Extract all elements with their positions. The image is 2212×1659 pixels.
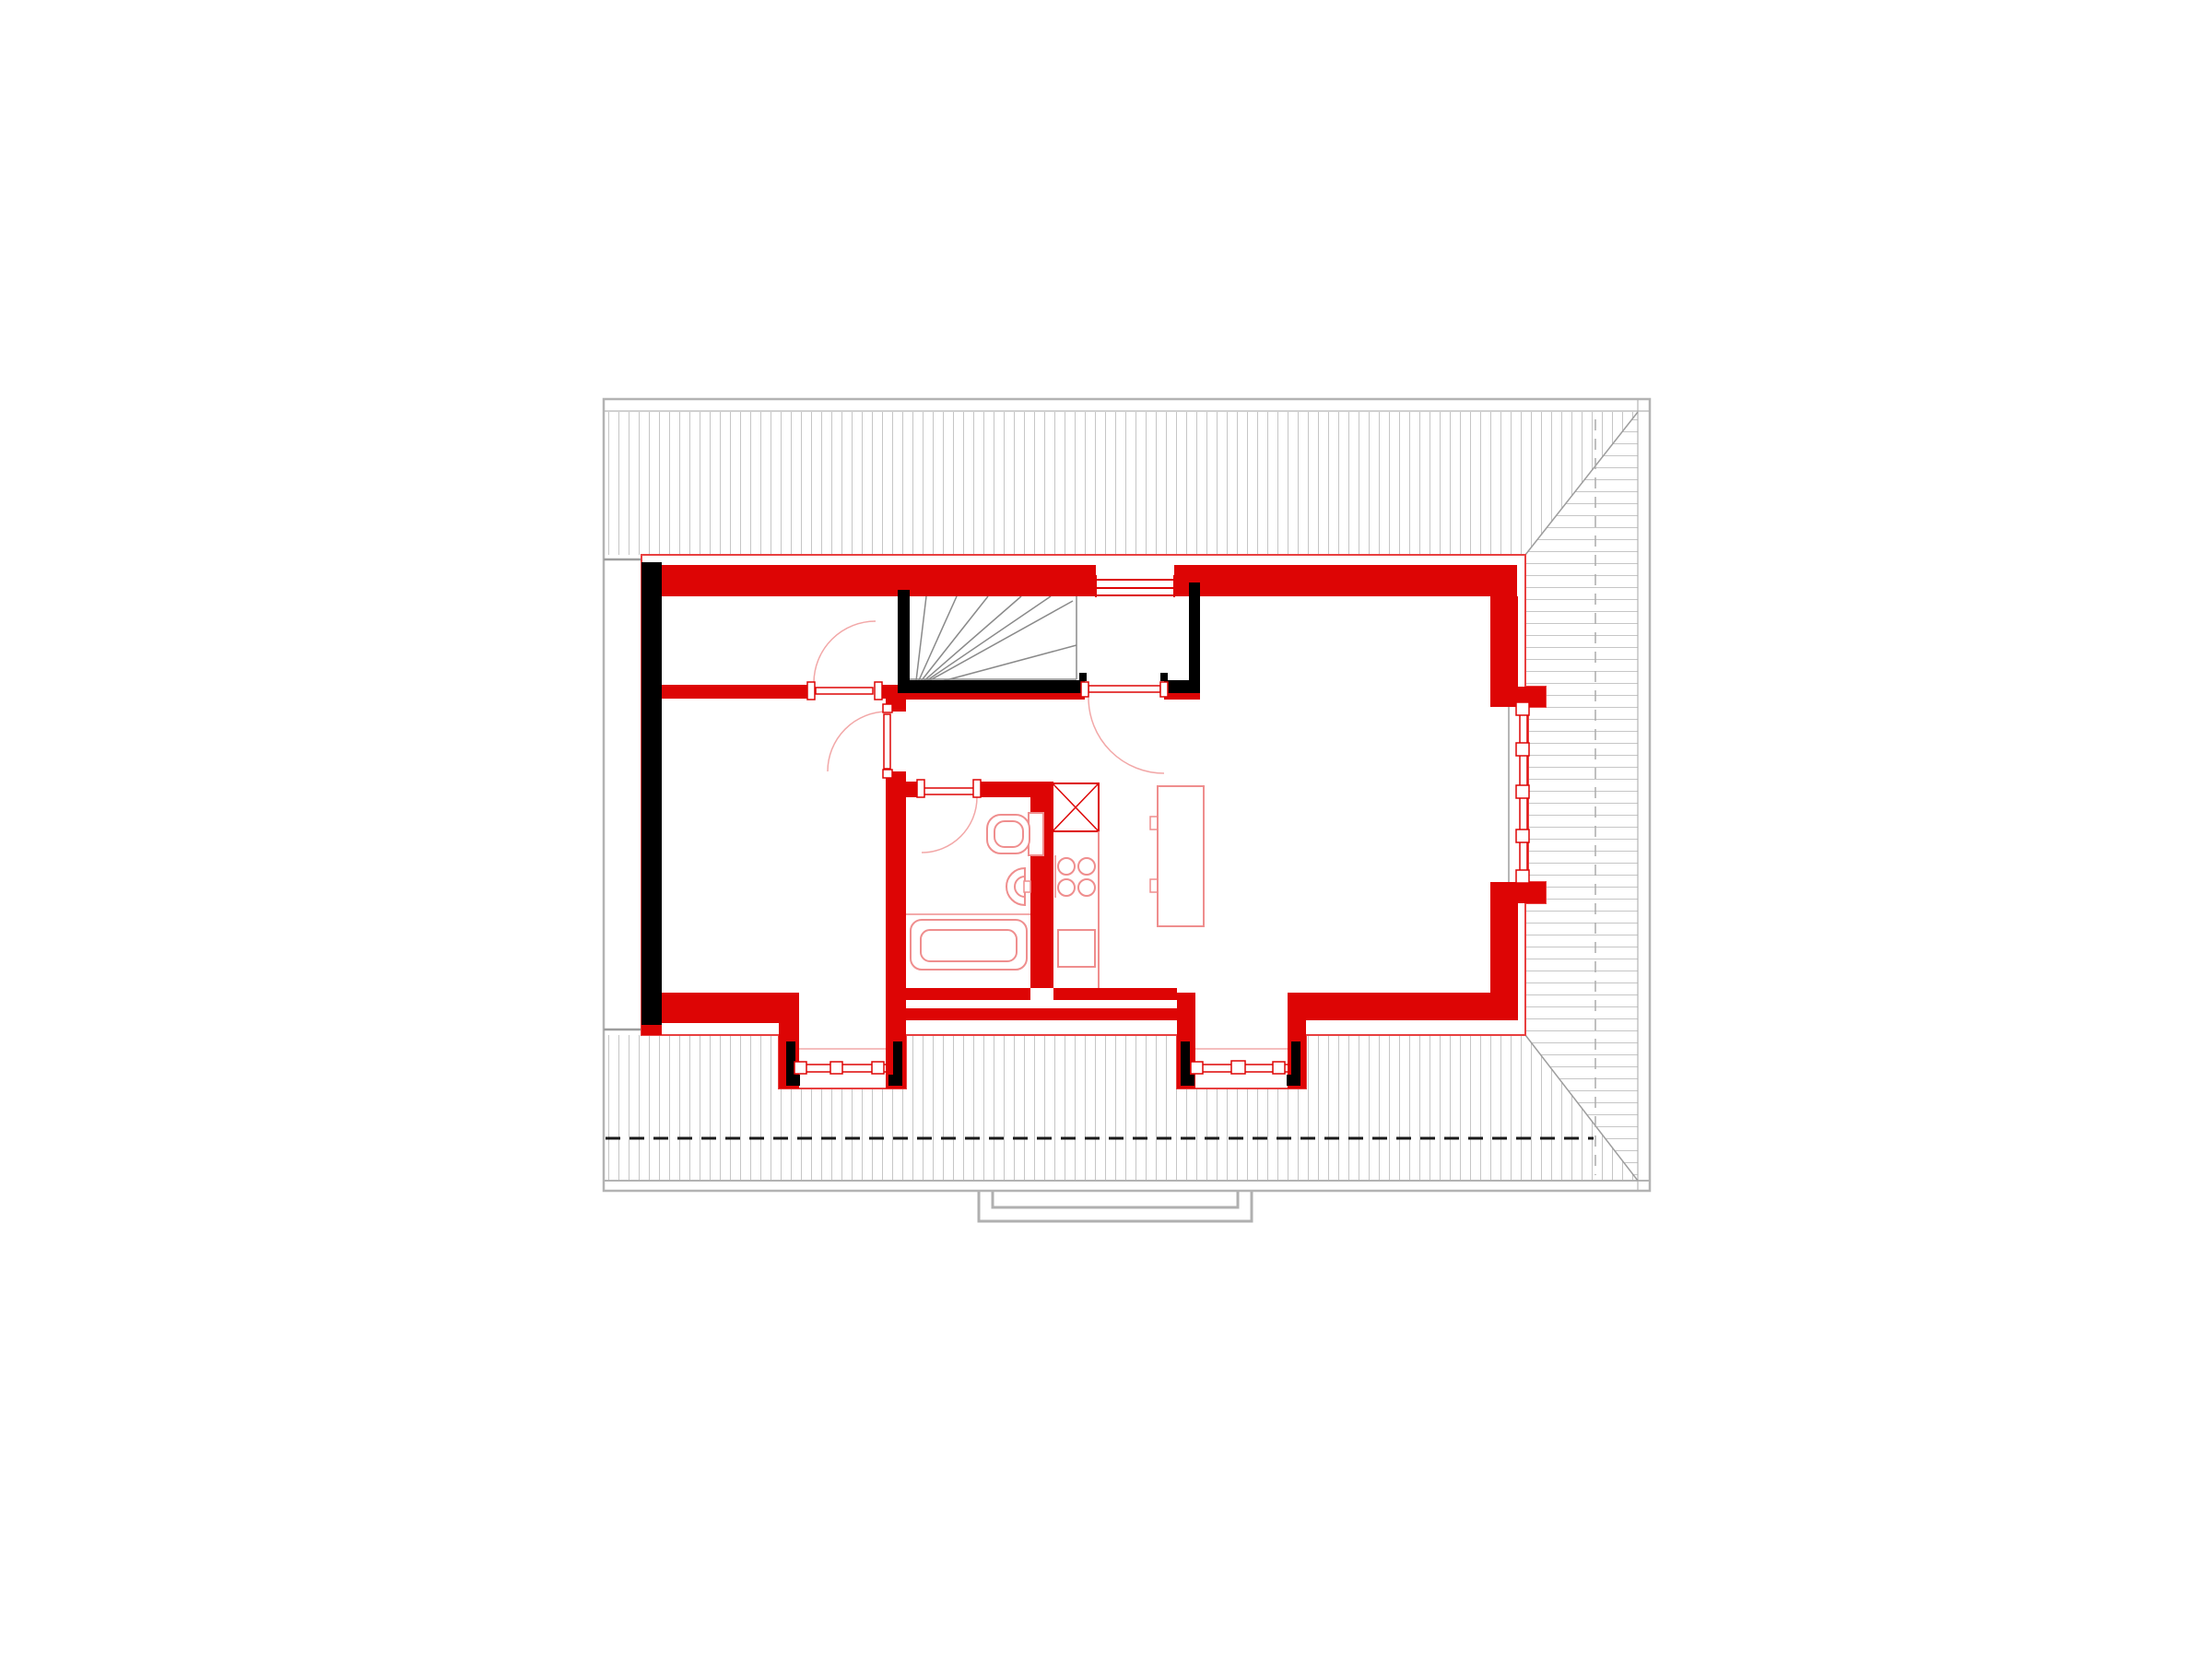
window-mullion [1516,702,1529,715]
toilet-bowl-inner [994,821,1023,847]
wall-bottom-right [1306,993,1518,1020]
toilet-cistern [1029,813,1043,855]
bathtub-inner [921,930,1017,961]
kitchen-sink [1058,930,1095,967]
door-leaf [1088,686,1160,692]
wall-stair-red-liner-left [898,693,1085,700]
window-top-wall [1096,565,1174,597]
window-mullion [794,1062,806,1074]
wall-hall-vertical [886,771,906,993]
wall-existing-left [641,562,662,1025]
dormer-right-jamb-accent-d [1287,1075,1300,1086]
window-mullion [1516,743,1529,756]
kitchen-island [1158,786,1204,926]
window-mullion [872,1062,884,1074]
window-mullion [1516,785,1529,798]
porch-outline-inner [993,1192,1238,1207]
door-leaf [884,714,890,769]
dormer-left-jamb-accent-d [888,1075,902,1086]
window-mullion [1273,1062,1285,1074]
dormer-right-jamb-accent-b [1181,1075,1194,1086]
door-jamb [883,770,892,778]
stair-door-jamb-bracket-left [1079,673,1087,681]
floor-plan-page: Attic floor plan drawing [0,0,2212,1659]
wall-top-right [1174,565,1517,596]
door-leaf [816,688,873,694]
wall-bottom-center [906,1008,1177,1020]
roof-hatch-bay-recess [1528,707,1541,882]
window-mullion [830,1062,842,1074]
dormer-left-jamb-accent-b [786,1075,800,1086]
door-leaf [924,788,975,794]
wall-stair-red-liner-right [1164,693,1200,700]
door-jamb [1160,682,1168,697]
wall-stairwell-right [1189,582,1200,693]
door-jamb [1081,682,1088,697]
roof-face-bottom [604,1035,1638,1181]
wall-bottom-left [662,993,781,1023]
wall-stairwell-left [898,590,910,693]
door-jamb [883,704,892,712]
wall-bathroom-bottom [906,988,1030,1000]
stair-door-jamb-bracket-right [1160,673,1168,681]
window-mullion [1516,829,1529,842]
roof-face-top [604,412,1638,555]
wall-bay-stub-bottom [1490,882,1546,903]
wall-stairwell-bottom [898,680,1085,693]
window-mullion [1191,1062,1203,1074]
wall-kitchen-bottom [1053,988,1177,1000]
wall-right-upper [1490,596,1518,688]
door-jamb [807,682,815,700]
washbasin-faucet [1024,881,1030,892]
window-mullion [1231,1061,1245,1074]
door-jamb [973,780,981,797]
door-jamb [917,780,924,797]
window-mullion [1516,870,1529,883]
wall-mid-horizontal-left [662,685,814,699]
door-jamb [875,682,882,700]
wall-top-left [662,565,1096,596]
porch-below [979,1192,1252,1221]
